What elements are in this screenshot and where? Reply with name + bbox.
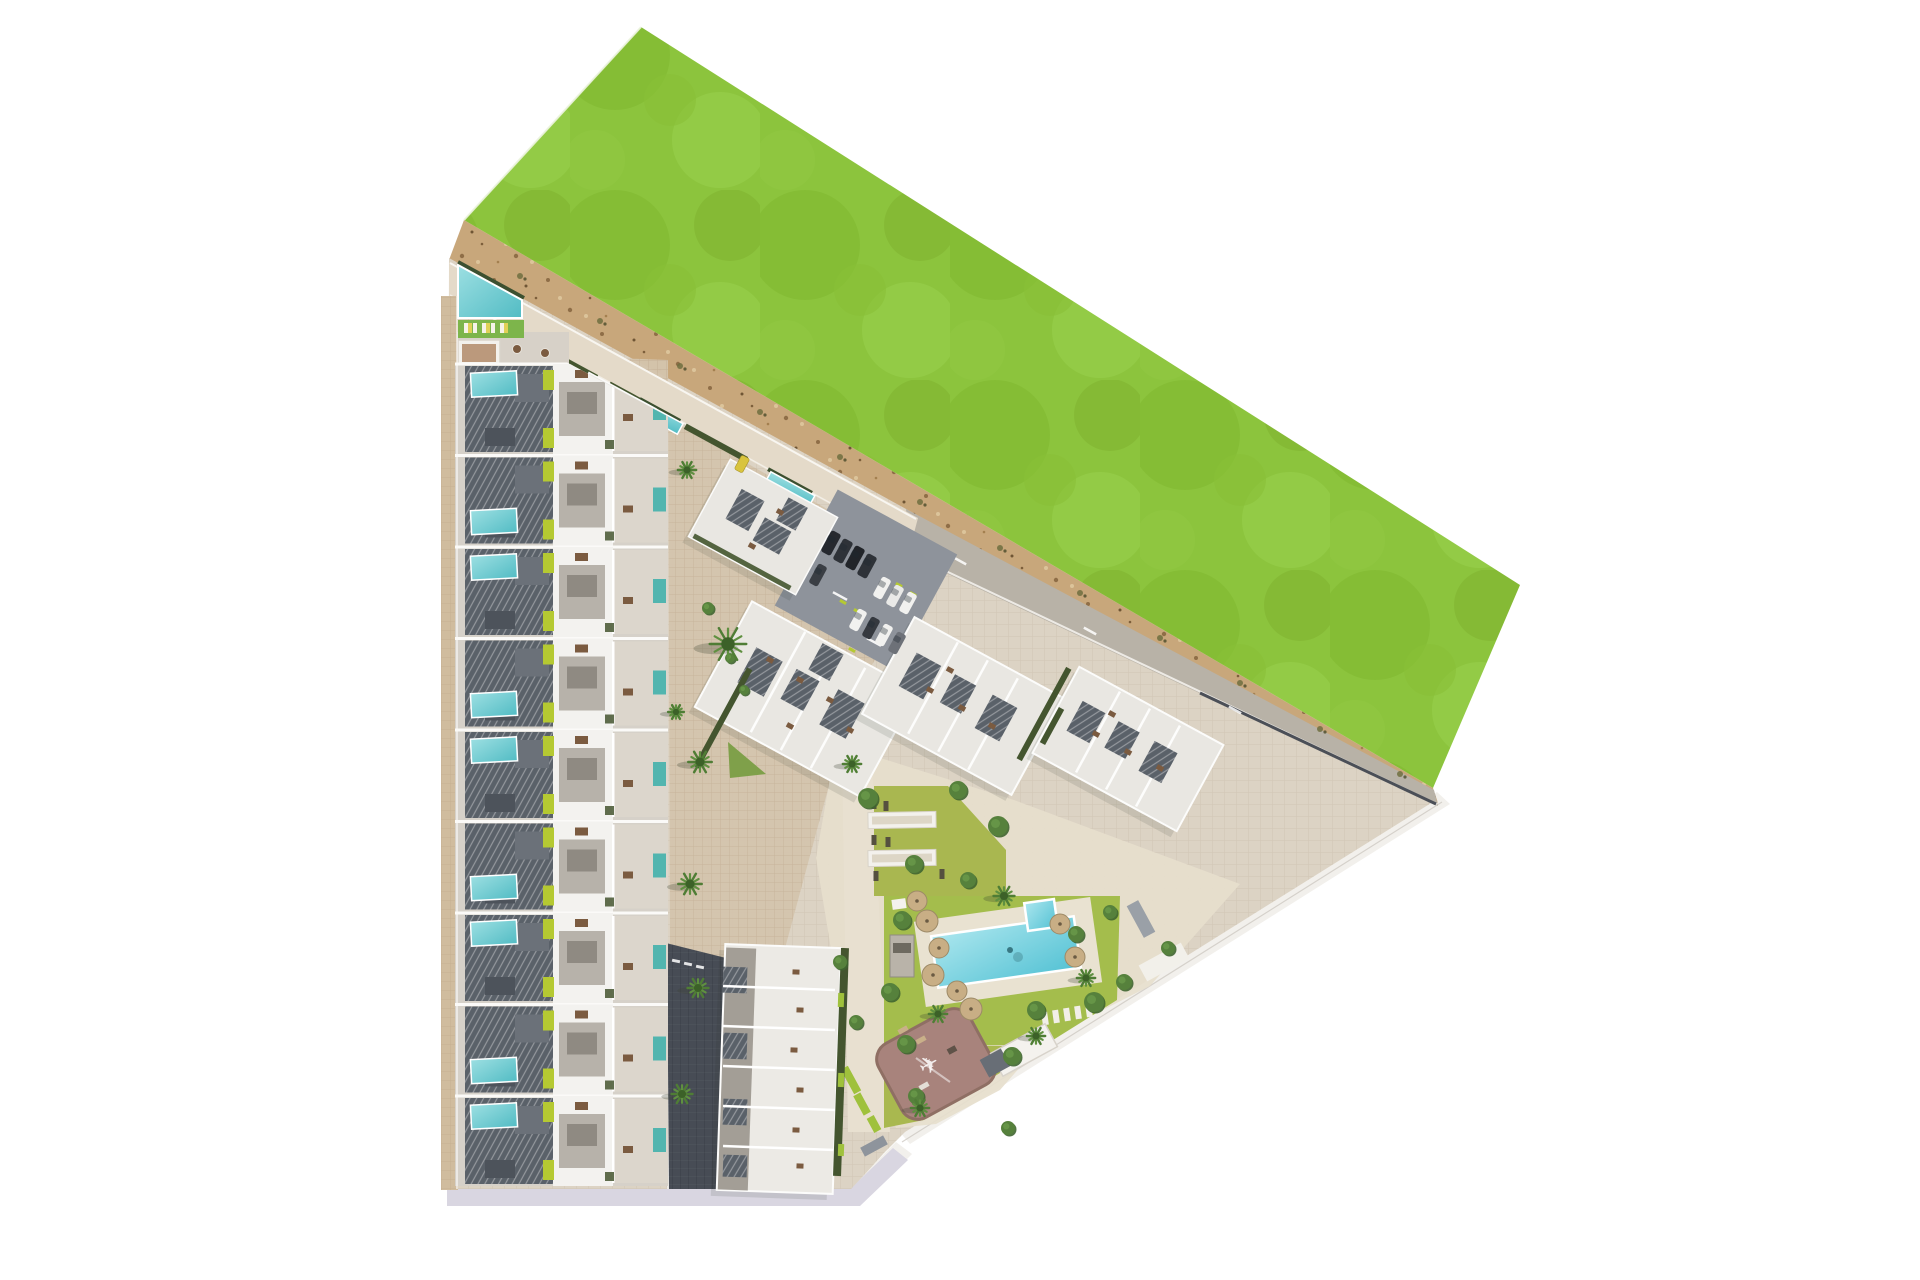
villa-part [623, 963, 633, 970]
parasol-pole [937, 946, 941, 950]
palm-crown [673, 709, 679, 715]
pool-cabana [890, 935, 914, 977]
villa-part [612, 550, 615, 634]
villa-pool [470, 508, 517, 534]
palm-crown [696, 758, 705, 767]
dune-scrub-bush [1317, 726, 1323, 732]
villa-part [543, 428, 554, 448]
tree-highlight [1087, 995, 1096, 1004]
villa-part [543, 553, 554, 573]
tree-highlight [952, 784, 960, 792]
villa-part [653, 854, 666, 878]
dune-scrub-bush [683, 367, 686, 370]
villa-part [612, 1008, 615, 1092]
lawn-loungers [482, 323, 486, 333]
pergola-slats [872, 815, 932, 824]
villa-part [567, 575, 597, 597]
lawn-loungers [473, 323, 477, 333]
parasol-pole [969, 1007, 973, 1011]
villa-part [605, 532, 614, 541]
villa-part [543, 1069, 554, 1089]
block-roof-louver [723, 1099, 748, 1126]
tree-highlight [908, 858, 916, 866]
villa-part [605, 898, 614, 907]
villa-pool [470, 691, 517, 717]
swimmer-shadow [1013, 952, 1023, 962]
scene-layer: ✈ [441, 27, 1520, 1206]
dune-scrub-bush [523, 277, 526, 280]
dune-scrub-bush [517, 273, 523, 279]
villa-part [623, 1146, 633, 1153]
patio-table [513, 345, 522, 354]
lawn-loungers [464, 323, 468, 333]
block-roof-louver [723, 967, 748, 994]
villa-part [485, 428, 515, 446]
villa-part [653, 1128, 666, 1152]
tree-highlight [900, 1038, 908, 1046]
tree-highlight [851, 1017, 857, 1023]
villa-part [543, 886, 554, 906]
villa-part [485, 977, 515, 995]
villa-part [543, 736, 554, 756]
lime-hedge [838, 1073, 844, 1087]
swimmer [1007, 947, 1013, 953]
parasol-pole [925, 919, 929, 923]
villa-part [653, 762, 666, 786]
dune-scrub-bush [677, 363, 683, 369]
villa-part [575, 1011, 588, 1019]
villa-part [653, 1037, 666, 1061]
villa-part [485, 1160, 515, 1178]
garden-lounger [872, 835, 877, 845]
villa-pool [470, 920, 517, 946]
villa-part [612, 459, 615, 543]
villa-part [653, 488, 666, 512]
dune-scrub-bush [1157, 635, 1163, 641]
villa-part [543, 794, 554, 814]
villa-part [623, 414, 633, 421]
dune-scrub-bush [1083, 594, 1086, 597]
villa-part [575, 736, 588, 744]
villa-part [543, 611, 554, 631]
villa-part [567, 941, 597, 963]
villa-part [605, 1172, 614, 1181]
villa-part [612, 642, 615, 726]
parasol-pole [915, 899, 919, 903]
villa-part [543, 703, 554, 723]
villa-part [543, 462, 554, 482]
dune-scrub-bush [597, 318, 603, 324]
villa-part [567, 758, 597, 780]
pool-cabana-roof [893, 943, 911, 953]
villa-pool [470, 737, 517, 763]
villa-part [623, 597, 633, 604]
terrace-furniture [792, 1127, 799, 1132]
lawn-loungers-yellow [468, 323, 472, 333]
villa-part [623, 1055, 633, 1062]
lawn-loungers [500, 323, 504, 333]
villa-part [605, 1081, 614, 1090]
block-roof-louver [723, 1155, 748, 1178]
villa-pool [470, 874, 517, 900]
dune-scrub-bush [837, 454, 843, 460]
tree-highlight [1105, 907, 1111, 913]
dune-scrub-bush [603, 322, 606, 325]
dune-scrub-bush [1003, 549, 1006, 552]
tree-highlight [1163, 943, 1169, 949]
villa-part [612, 825, 615, 909]
villa-part [605, 440, 614, 449]
villa-part [575, 828, 588, 836]
villa-rows [455, 363, 668, 1187]
villa-part [623, 872, 633, 879]
palm-crown [848, 760, 855, 767]
tree-highlight [1003, 1123, 1009, 1129]
palm-crown [683, 466, 690, 473]
tree-highlight [741, 687, 746, 692]
dune-scrub-bush [1397, 771, 1403, 777]
villa-part [605, 806, 614, 815]
dune-scrub-bush [763, 413, 766, 416]
dune-scrub-bush [843, 458, 846, 461]
palm-crown [678, 1090, 686, 1098]
villa-part [575, 1102, 588, 1110]
palm-crown [1082, 974, 1089, 981]
terrace-furniture [796, 1007, 803, 1012]
palm-crown [721, 637, 735, 651]
palm-crown [934, 1010, 941, 1017]
tree-highlight [896, 914, 904, 922]
tree-highlight [835, 957, 841, 963]
villa-part [485, 794, 515, 812]
villa-part [653, 579, 666, 603]
villa-pool [470, 1103, 517, 1129]
villa-part [575, 462, 588, 470]
palm-crown [1032, 1032, 1039, 1039]
garden-lounger [886, 837, 891, 847]
villa-pool [470, 371, 517, 397]
site-plan-canvas: ✈ [0, 0, 1920, 1280]
tree-highlight [1118, 976, 1125, 983]
villa-part [543, 1160, 554, 1180]
patio-table [541, 349, 550, 358]
dune-scrub-bush [1163, 639, 1166, 642]
tree-highlight [1006, 1050, 1014, 1058]
parasol-pole [1073, 955, 1077, 959]
parasol-pole [955, 989, 959, 993]
villa-part [605, 989, 614, 998]
garden-lounger [874, 871, 879, 881]
terrace-furniture [792, 969, 799, 974]
block-roof-louver [723, 1033, 748, 1060]
villa-part [543, 370, 554, 390]
villa-part [612, 916, 615, 1000]
villa-part [543, 828, 554, 848]
dune-scrub-bush [1243, 684, 1246, 687]
amenity-pergola-slats [462, 344, 496, 362]
lime-hedge [838, 1144, 844, 1156]
villa-part [567, 484, 597, 506]
villa-part [605, 715, 614, 724]
palm-crown [694, 984, 702, 992]
parasol-pole [1058, 922, 1062, 926]
villa-part [543, 520, 554, 540]
villa-part [543, 977, 554, 997]
villa-part [623, 689, 633, 696]
tree-highlight [884, 986, 892, 994]
cabana [891, 898, 906, 910]
lawn-loungers [491, 323, 495, 333]
villa-part [612, 733, 615, 817]
villa-part [605, 623, 614, 632]
villa-part [567, 1033, 597, 1055]
villa-part [567, 850, 597, 872]
lawn-loungers-yellow [504, 323, 508, 333]
villa-part [623, 780, 633, 787]
garden-lounger [884, 801, 889, 811]
dune-scrub-bush [1403, 775, 1406, 778]
terrace-furniture [796, 1087, 803, 1092]
villa-part [485, 611, 515, 629]
villa-part [653, 671, 666, 695]
villa-part [653, 945, 666, 969]
lime-hedge [838, 993, 844, 1007]
dune-scrub-bush [1237, 680, 1243, 686]
dune-scrub-bush [757, 409, 763, 415]
villa-part [575, 645, 588, 653]
palm-crown [686, 880, 695, 889]
villa-part [543, 1102, 554, 1122]
parasol-pole [931, 973, 935, 977]
tree-highlight [1030, 1004, 1038, 1012]
villa-part [543, 645, 554, 665]
tree-highlight [1070, 928, 1077, 935]
palm-crown [1000, 892, 1008, 900]
villa-part [575, 919, 588, 927]
dune-scrub-bush [997, 545, 1003, 551]
villa-part [567, 1124, 597, 1146]
villa-part [623, 506, 633, 513]
villa-part [543, 1011, 554, 1031]
tree-highlight [991, 819, 1000, 828]
dune-scrub-bush [923, 503, 926, 506]
villa-part [567, 392, 597, 414]
tree-highlight [704, 604, 709, 609]
villa-part [612, 1099, 615, 1183]
tree-highlight [861, 791, 870, 800]
tree-highlight [910, 1090, 917, 1097]
lawn-loungers-yellow [486, 323, 490, 333]
villa-part [543, 919, 554, 939]
palm-crown [916, 1104, 923, 1111]
tree-highlight [962, 874, 969, 881]
dune-scrub-bush [1323, 730, 1326, 733]
villa-part [567, 667, 597, 689]
terrace-furniture [796, 1163, 803, 1168]
dune-scrub-bush [917, 499, 923, 505]
villa-pool [470, 554, 517, 580]
garden-lounger [940, 869, 945, 879]
dune-scrub-bush [1077, 590, 1083, 596]
villa-pool [470, 1057, 517, 1083]
terrace-furniture [790, 1047, 797, 1052]
villa-part [575, 553, 588, 561]
site-plan-render: ✈ [0, 0, 1920, 1280]
